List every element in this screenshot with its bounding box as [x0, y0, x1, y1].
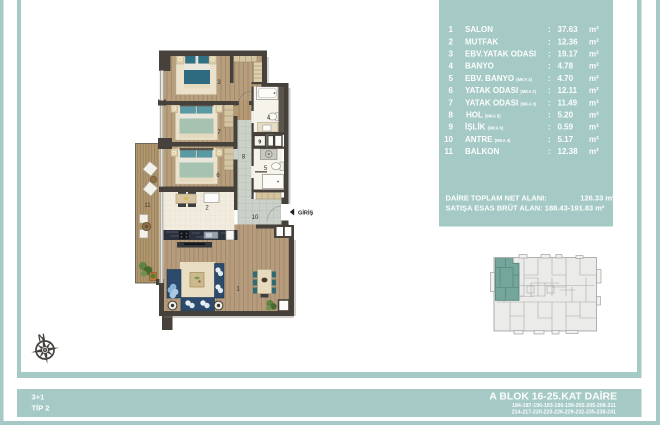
svg-text:SATIŞA ESAS BRÜT ALAN: 188.43-: SATIŞA ESAS BRÜT ALAN: 188.43-191.83 m² — [446, 203, 605, 212]
svg-text:184-187-190-193-196-199-202-20: 184-187-190-193-196-199-202-205-208-211 — [512, 403, 616, 409]
svg-text:m²: m² — [589, 111, 599, 120]
svg-text:TİP 2: TİP 2 — [32, 404, 50, 413]
svg-text:EBV.YATAK ODASI: EBV.YATAK ODASI — [465, 50, 536, 59]
svg-text:214-217-220-223-226-229-232-23: 214-217-220-223-226-229-232-235-238-241 — [512, 410, 616, 416]
svg-text::: : — [548, 135, 551, 144]
svg-text:9: 9 — [258, 140, 261, 146]
svg-text:3: 3 — [449, 50, 454, 59]
svg-text:m²: m² — [589, 62, 599, 71]
svg-text:DAİRE TOPLAM NET ALANI:: DAİRE TOPLAM NET ALANI: — [446, 193, 547, 202]
svg-text:1: 1 — [449, 25, 454, 34]
svg-text::: : — [548, 37, 551, 46]
svg-text::: : — [548, 62, 551, 71]
svg-text::: : — [548, 86, 551, 95]
svg-text:12.38: 12.38 — [558, 147, 579, 156]
svg-text:19.17: 19.17 — [558, 50, 579, 59]
svg-text:7: 7 — [449, 98, 454, 107]
svg-text:12.36: 12.36 — [558, 37, 579, 46]
svg-text:m²: m² — [589, 37, 599, 46]
svg-text:m²: m² — [589, 74, 599, 83]
svg-text:37.63: 37.63 — [558, 25, 579, 34]
svg-text:10: 10 — [444, 135, 453, 144]
svg-text::: : — [548, 50, 551, 59]
svg-text:11: 11 — [144, 203, 151, 209]
svg-text::: : — [548, 25, 551, 34]
svg-text:BALKON: BALKON — [465, 147, 499, 156]
svg-text:2: 2 — [449, 37, 454, 46]
svg-text:11.49: 11.49 — [558, 98, 578, 107]
svg-text:m²: m² — [589, 123, 599, 132]
svg-text:4.70: 4.70 — [558, 74, 574, 83]
svg-text:m²: m² — [589, 86, 599, 95]
svg-text::: : — [548, 123, 551, 132]
svg-text:SALON: SALON — [465, 25, 493, 34]
svg-text::: : — [548, 74, 551, 83]
svg-text::: : — [548, 147, 551, 156]
svg-text:11: 11 — [445, 147, 454, 156]
svg-text:4.78: 4.78 — [558, 62, 574, 71]
svg-text:9: 9 — [449, 123, 454, 132]
svg-text::: : — [548, 111, 551, 120]
svg-text:12.11: 12.11 — [558, 86, 578, 95]
svg-text:m²: m² — [589, 147, 599, 156]
svg-text:A BLOK 16-25.KAT DAİRE: A BLOK 16-25.KAT DAİRE — [489, 390, 617, 403]
svg-text:3+1: 3+1 — [32, 393, 46, 402]
svg-text:N: N — [37, 332, 46, 344]
svg-text:0.59: 0.59 — [558, 123, 574, 132]
svg-text:m²: m² — [589, 50, 599, 59]
svg-text:6: 6 — [449, 86, 454, 95]
svg-text:5.20: 5.20 — [558, 111, 574, 120]
svg-text:GİRİŞ: GİRİŞ — [298, 210, 313, 217]
svg-text:m²: m² — [589, 135, 599, 144]
svg-text::: : — [548, 98, 551, 107]
svg-text:4: 4 — [449, 62, 454, 71]
svg-text:5.17: 5.17 — [558, 135, 574, 144]
svg-text:m²: m² — [589, 25, 599, 34]
svg-text:126.33 m²: 126.33 m² — [580, 193, 615, 202]
svg-text:m²: m² — [589, 98, 599, 107]
svg-text:5: 5 — [449, 74, 454, 83]
svg-text:MUTFAK: MUTFAK — [465, 37, 499, 46]
svg-text:10: 10 — [252, 215, 259, 221]
svg-text:BANYO: BANYO — [465, 62, 494, 71]
svg-text:8: 8 — [449, 111, 454, 120]
